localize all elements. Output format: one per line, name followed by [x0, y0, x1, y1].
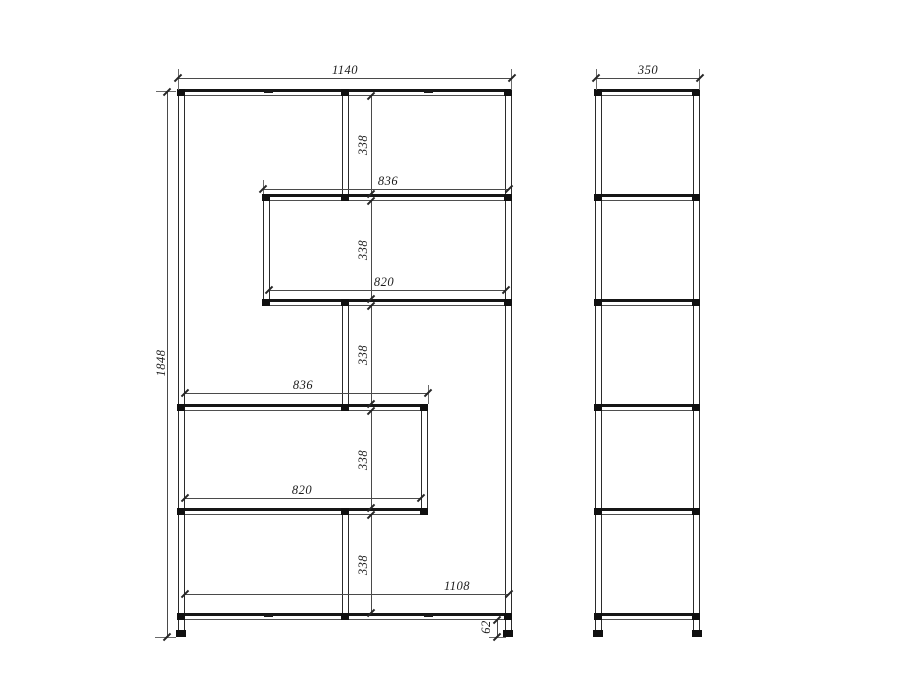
- dim-label-leg-height: 62: [479, 613, 493, 641]
- connector-block: [177, 508, 185, 515]
- fitting-mark: [264, 90, 273, 93]
- connector-block: [341, 89, 349, 96]
- dim-label-bay-height-1: 338: [356, 127, 370, 163]
- extension-line: [178, 69, 179, 90]
- connector-block: [341, 613, 349, 620]
- front-shelf-4: [178, 404, 428, 411]
- dimension-line: [263, 189, 509, 190]
- dim-label-base-shelf: 1108: [432, 579, 482, 593]
- dimension-line: [371, 515, 372, 613]
- connector-block: [692, 613, 700, 620]
- connector-block: [177, 404, 185, 411]
- connector-block: [692, 299, 700, 306]
- front-shelf-5: [178, 508, 428, 515]
- fitting-mark: [264, 614, 273, 617]
- connector-block: [341, 194, 349, 201]
- connector-block: [504, 89, 512, 96]
- connector-block: [177, 89, 185, 96]
- connector-block: [341, 299, 349, 306]
- side-shelf-top: [595, 89, 700, 96]
- extension-line: [596, 69, 597, 90]
- fitting-mark: [424, 90, 433, 93]
- side-shelf-4: [595, 404, 700, 411]
- connector-block: [262, 299, 270, 306]
- dimension-line: [371, 306, 372, 404]
- dim-label-overall-width: 1140: [320, 63, 370, 77]
- connector-block: [594, 299, 602, 306]
- dim-label-bay-height-3: 338: [356, 337, 370, 373]
- leg-foot: [593, 630, 603, 637]
- connector-block: [594, 613, 602, 620]
- dimension-line: [371, 411, 372, 508]
- dimension-line: [178, 78, 512, 79]
- front-divider-bottom: [342, 515, 349, 613]
- connector-block: [594, 404, 602, 411]
- dim-label-bay-height-4: 338: [356, 442, 370, 478]
- connector-block: [177, 613, 185, 620]
- leg-foot: [692, 630, 702, 637]
- connector-block: [594, 508, 602, 515]
- connector-block: [341, 404, 349, 411]
- side-shelf-bottom: [595, 613, 700, 620]
- dimension-tick: [508, 74, 516, 82]
- side-left-post: [595, 92, 602, 637]
- leg-foot: [176, 630, 186, 637]
- connector-block: [504, 613, 512, 620]
- side-shelf-2: [595, 194, 700, 201]
- dimension-line: [185, 498, 421, 499]
- front-shelf-2: [263, 194, 512, 201]
- side-shelf-3: [595, 299, 700, 306]
- front-right-post: [505, 92, 512, 637]
- dimension-tick: [696, 74, 704, 82]
- connector-block: [594, 194, 602, 201]
- connector-block: [262, 194, 270, 201]
- fitting-mark: [424, 614, 433, 617]
- connector-block: [692, 89, 700, 96]
- front-left-post: [178, 92, 185, 637]
- dimension-line: [185, 594, 509, 595]
- connector-block: [594, 89, 602, 96]
- extension-line: [428, 385, 429, 404]
- leg-foot: [503, 630, 513, 637]
- side-right-post: [693, 92, 700, 637]
- connector-block: [692, 404, 700, 411]
- front-divider-top: [342, 96, 349, 194]
- connector-block: [504, 194, 512, 201]
- dim-label-upper-shelf-outer: 836: [363, 174, 413, 188]
- front-box-wall-left: [263, 201, 270, 299]
- dim-label-bay-height-2: 338: [356, 232, 370, 268]
- dim-label-lower-shelf-inner: 820: [277, 483, 327, 497]
- side-shelf-5: [595, 508, 700, 515]
- dimension-line: [269, 290, 506, 291]
- dim-label-upper-shelf-inner: 820: [359, 275, 409, 289]
- dimension-line: [596, 78, 700, 79]
- connector-block: [420, 508, 428, 515]
- dim-label-overall-depth: 350: [623, 63, 673, 77]
- connector-block: [692, 508, 700, 515]
- dim-label-bay-height-5: 338: [356, 547, 370, 583]
- connector-block: [420, 404, 428, 411]
- dimension-line: [185, 393, 428, 394]
- dim-label-overall-height: 1848: [154, 341, 168, 385]
- front-shelf-3: [263, 299, 512, 306]
- dim-label-lower-shelf-outer: 836: [278, 378, 328, 392]
- connector-block: [504, 299, 512, 306]
- front-divider-middle: [342, 306, 349, 404]
- technical-drawing-canvas: 1140 350 1848 338 338 338 338: [0, 0, 919, 689]
- connector-block: [692, 194, 700, 201]
- connector-block: [341, 508, 349, 515]
